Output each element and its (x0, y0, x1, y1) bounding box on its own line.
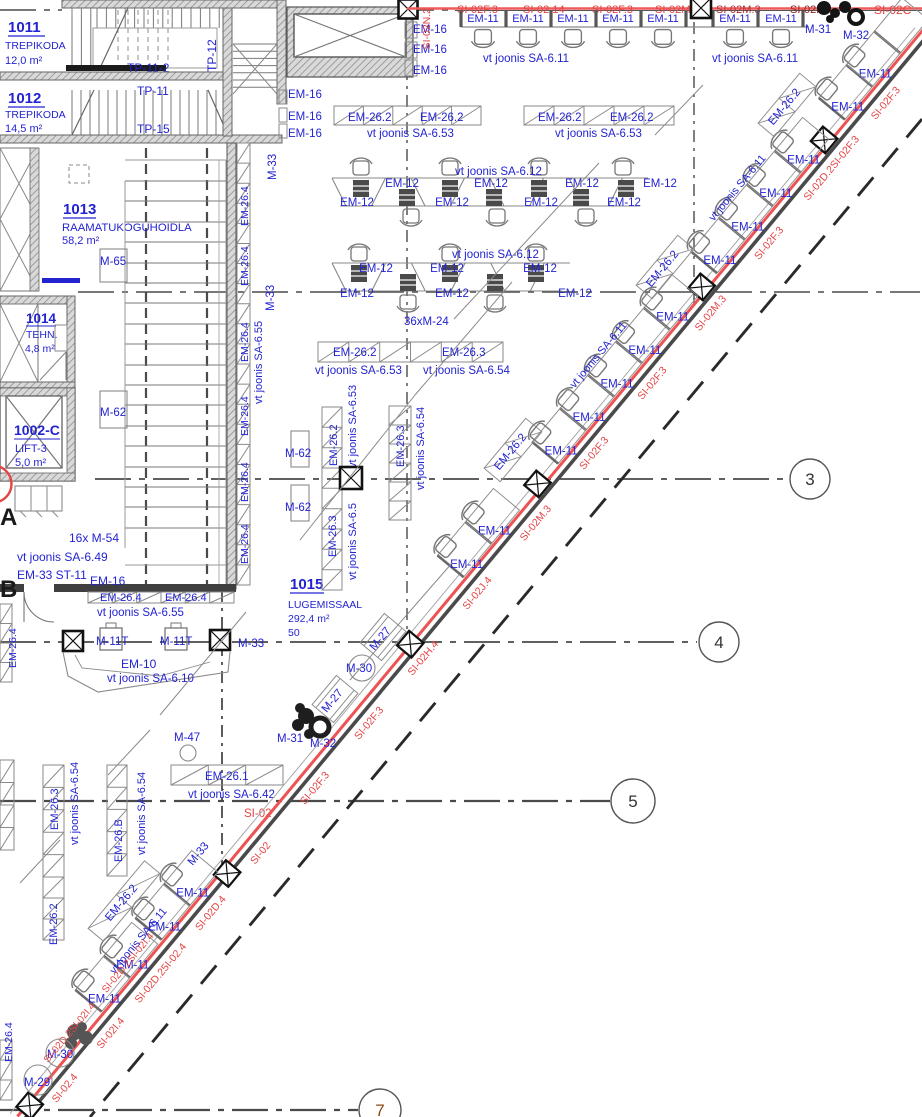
svg-text:EM-11: EM-11 (557, 13, 589, 25)
svg-text:EM-11: EM-11 (450, 559, 483, 571)
svg-text:M-33: M-33 (238, 638, 264, 650)
svg-text:1013: 1013 (63, 201, 96, 218)
svg-text:vt joonis SA-6.53: vt joonis SA-6.53 (347, 385, 359, 468)
svg-text:EM-12: EM-12 (474, 178, 508, 190)
svg-text:EM-16: EM-16 (288, 128, 322, 140)
svg-text:EM-26.4: EM-26.4 (239, 396, 251, 436)
svg-text:SI-02N.2: SI-02N.2 (421, 8, 433, 50)
svg-text:vt joonis SA-6.54: vt joonis SA-6.54 (136, 772, 148, 855)
svg-text:M-47: M-47 (174, 732, 200, 744)
svg-text:M-65: M-65 (100, 256, 126, 268)
svg-text:EM-26.3: EM-26.3 (395, 425, 407, 467)
svg-text:7: 7 (375, 1101, 384, 1117)
svg-text:TP-15: TP-15 (137, 122, 170, 136)
svg-text:EM-26.2: EM-26.2 (348, 112, 391, 124)
svg-text:EM-12: EM-12 (565, 178, 599, 190)
svg-text:EM-12: EM-12 (430, 263, 464, 275)
svg-text:EM-12: EM-12 (385, 178, 419, 190)
svg-text:EM-12: EM-12 (524, 197, 558, 209)
svg-text:EM-26.2: EM-26.2 (328, 424, 340, 466)
svg-text:vt joonis SA-6.42: vt joonis SA-6.42 (188, 789, 275, 801)
svg-text:EM-11: EM-11 (176, 888, 209, 900)
svg-text:EM-11: EM-11 (602, 13, 634, 25)
svg-text:M-33: M-33 (267, 154, 279, 180)
svg-text:EM-26.4: EM-26.4 (3, 1022, 15, 1062)
svg-text:1012: 1012 (8, 90, 41, 107)
svg-text:EM-11: EM-11 (703, 255, 736, 267)
svg-text:EM-26.2: EM-26.2 (48, 903, 60, 945)
svg-text:EM-16: EM-16 (288, 89, 322, 101)
svg-text:12,0 m²: 12,0 m² (5, 55, 43, 67)
svg-text:vt joonis SA-6.49: vt joonis SA-6.49 (17, 550, 108, 564)
svg-text:EM-10: EM-10 (121, 657, 157, 671)
svg-text:M-33: M-33 (265, 285, 277, 311)
svg-text:EM-12: EM-12 (643, 178, 677, 190)
svg-text:EM-11: EM-11 (719, 13, 751, 25)
svg-text:M-62: M-62 (285, 448, 311, 460)
svg-text:EM-26.B: EM-26.B (113, 819, 125, 862)
svg-text:EM-26.3: EM-26.3 (442, 347, 485, 359)
svg-text:EM-16: EM-16 (413, 65, 447, 77)
svg-text:EM-33 ST-11: EM-33 ST-11 (17, 568, 87, 582)
svg-text:vt joonis SA-6.12: vt joonis SA-6.12 (455, 166, 542, 178)
svg-text:LUGEMISSAAL: LUGEMISSAAL (288, 599, 362, 611)
svg-text:A: A (0, 504, 17, 531)
svg-text:58,2 m²: 58,2 m² (62, 235, 100, 247)
svg-text:EM-26.4: EM-26.4 (100, 592, 142, 604)
svg-text:vt joonis SA-6.12: vt joonis SA-6.12 (452, 249, 539, 261)
svg-text:vt joonis SA-6.11: vt joonis SA-6.11 (483, 53, 569, 65)
svg-text:EM-11: EM-11 (512, 13, 544, 25)
svg-text:M-11T: M-11T (96, 636, 128, 648)
svg-text:vt joonis SA-6.53: vt joonis SA-6.53 (555, 128, 642, 140)
svg-text:M-62: M-62 (285, 502, 311, 514)
svg-text:1015: 1015 (290, 576, 323, 593)
svg-text:M-32: M-32 (843, 30, 869, 42)
svg-text:vt joonis SA-6.11: vt joonis SA-6.11 (712, 53, 798, 65)
svg-text:LIFT-3: LIFT-3 (15, 443, 47, 455)
svg-text:EM-12: EM-12 (435, 197, 469, 209)
svg-text:EM-26.2: EM-26.2 (420, 112, 463, 124)
svg-text:TREPIKODA: TREPIKODA (5, 40, 66, 52)
svg-text:vt joonis SA-6.55: vt joonis SA-6.55 (97, 607, 184, 619)
svg-text:EM-26.4: EM-26.4 (7, 628, 19, 668)
svg-text:292,4 m²: 292,4 m² (288, 613, 330, 625)
svg-text:EM-26.2: EM-26.2 (538, 112, 581, 124)
svg-text:M-62: M-62 (100, 407, 126, 419)
svg-text:EM-12: EM-12 (523, 263, 557, 275)
svg-text:EM-26.4: EM-26.4 (239, 462, 251, 502)
svg-text:EM-26.4: EM-26.4 (239, 322, 251, 362)
svg-text:4: 4 (714, 633, 723, 652)
svg-text:EM-26.4: EM-26.4 (239, 524, 251, 564)
svg-text:TP-12: TP-12 (205, 39, 219, 72)
svg-text:M-11T: M-11T (160, 636, 192, 648)
svg-text:EM-26.3: EM-26.3 (49, 788, 61, 830)
svg-text:vt joonis SA-6.54: vt joonis SA-6.54 (415, 407, 427, 490)
svg-text:1002-C: 1002-C (14, 422, 60, 438)
svg-text:B: B (0, 576, 17, 603)
svg-text:TEHN.: TEHN. (26, 329, 58, 341)
svg-text:EM-16: EM-16 (288, 111, 322, 123)
svg-text:EM-26.4: EM-26.4 (239, 186, 251, 226)
svg-text:vt joonis SA-6.55: vt joonis SA-6.55 (253, 321, 265, 404)
svg-text:M-31: M-31 (805, 24, 831, 36)
svg-text:1011: 1011 (8, 19, 41, 36)
svg-text:EM-26.3: EM-26.3 (327, 515, 339, 557)
svg-text:TREPIKODA: TREPIKODA (5, 109, 66, 121)
svg-text:RAAMATUKOGUHOIDLA: RAAMATUKOGUHOIDLA (62, 222, 192, 234)
svg-text:4,8 m²: 4,8 m² (25, 343, 55, 355)
svg-text:EM-12: EM-12 (607, 197, 641, 209)
svg-text:14,5 m²: 14,5 m² (5, 123, 43, 135)
svg-text:M-32: M-32 (310, 738, 336, 750)
svg-text:EM-26.4: EM-26.4 (239, 246, 251, 286)
svg-text:EM-26.2: EM-26.2 (333, 347, 376, 359)
svg-text:EM-12: EM-12 (359, 263, 393, 275)
svg-text:EM-12: EM-12 (558, 288, 592, 300)
svg-text:M-31: M-31 (277, 733, 303, 745)
svg-text:16x M-54: 16x M-54 (69, 531, 119, 545)
svg-text:EM-16: EM-16 (90, 574, 126, 588)
svg-text:5,0 m²: 5,0 m² (15, 457, 47, 469)
svg-text:50: 50 (288, 627, 300, 639)
svg-text:EM-11: EM-11 (545, 446, 578, 458)
svg-text:1014: 1014 (26, 311, 57, 326)
svg-text:EM-26.2: EM-26.2 (610, 112, 653, 124)
svg-text:EM-11: EM-11 (467, 13, 499, 25)
svg-text:vt joonis SA-6.5: vt joonis SA-6.5 (347, 503, 359, 580)
svg-text:EM-11: EM-11 (647, 13, 679, 25)
svg-text:36xM-24: 36xM-24 (404, 316, 449, 328)
svg-text:EM-12: EM-12 (340, 197, 374, 209)
svg-text:M-29: M-29 (24, 1077, 50, 1089)
svg-text:EM-26.1: EM-26.1 (205, 771, 248, 783)
svg-text:vt joonis SA-6.10: vt joonis SA-6.10 (107, 673, 194, 685)
svg-text:vt joonis SA-6.53: vt joonis SA-6.53 (315, 365, 402, 377)
svg-text:3: 3 (805, 470, 814, 489)
svg-text:EM-26.4: EM-26.4 (165, 592, 207, 604)
svg-text:EM-12: EM-12 (340, 288, 374, 300)
svg-text:EM-11: EM-11 (765, 13, 797, 25)
svg-text:vt joonis SA-6.53: vt joonis SA-6.53 (367, 128, 454, 140)
svg-text:EM-12: EM-12 (435, 288, 469, 300)
svg-text:EM-11: EM-11 (831, 102, 864, 114)
svg-text:SI-02C: SI-02C (874, 3, 912, 17)
svg-text:vt joonis SA-6.54: vt joonis SA-6.54 (69, 762, 81, 845)
svg-text:5: 5 (628, 792, 637, 811)
